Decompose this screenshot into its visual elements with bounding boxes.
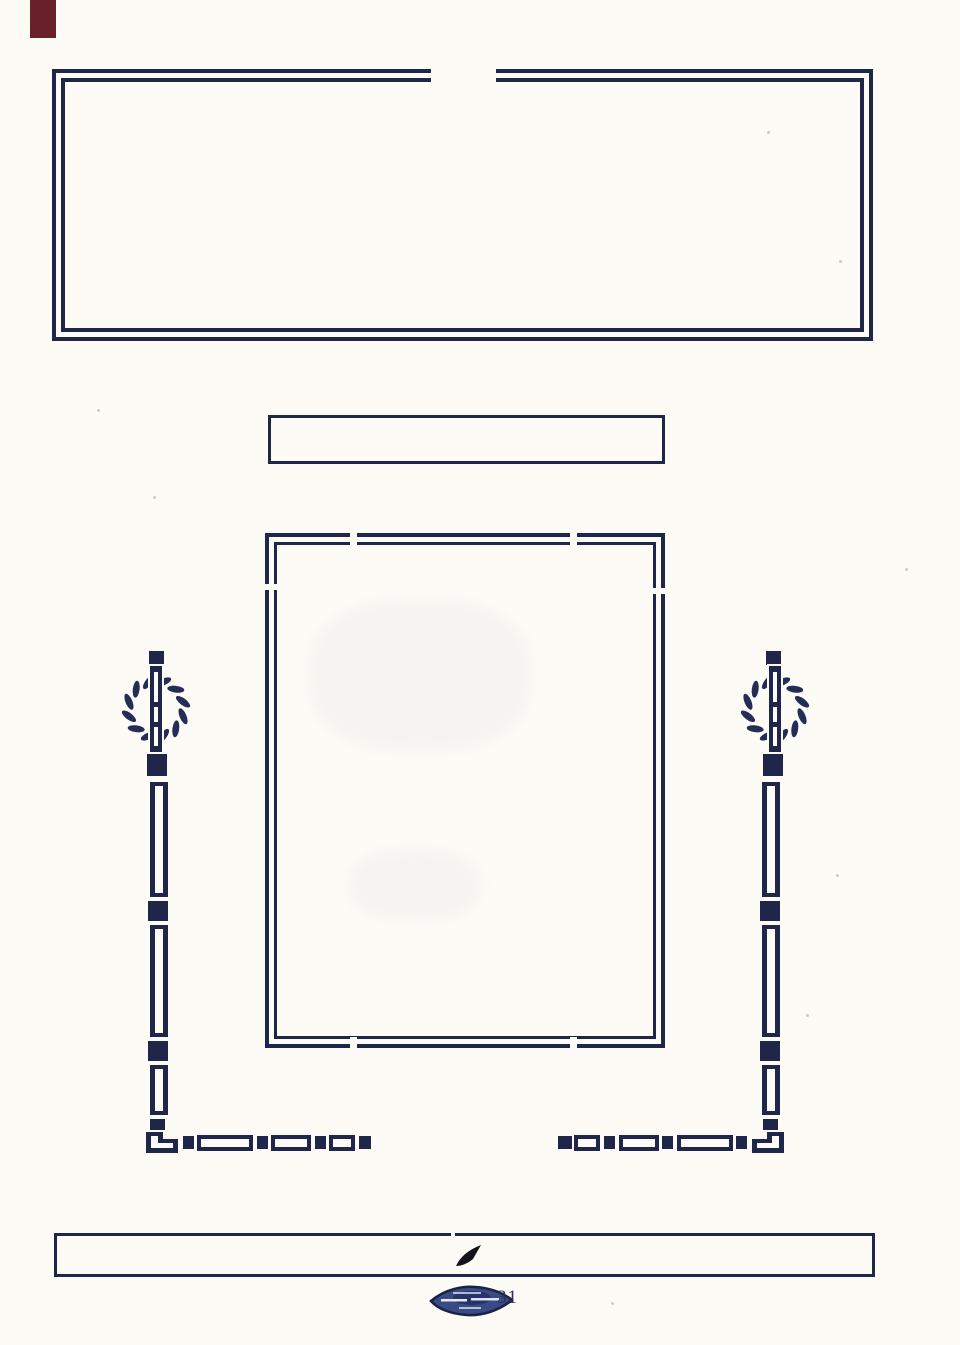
chain-bar-horizontal <box>677 1135 733 1151</box>
page-number: 31 <box>497 1288 518 1307</box>
frame-rule-break <box>451 1230 455 1239</box>
bead <box>183 1136 194 1149</box>
chain-bar-horizontal <box>574 1135 600 1151</box>
chain-bar-horizontal <box>197 1135 253 1151</box>
bead <box>760 1041 780 1061</box>
wreath-and-staff-icon <box>119 664 193 754</box>
bead <box>149 651 164 665</box>
chain-bar-vertical <box>150 1065 168 1115</box>
bead <box>766 651 781 665</box>
chain-corner-icon <box>146 1132 178 1153</box>
chain-bar-horizontal <box>329 1135 355 1151</box>
chain-bar-vertical <box>762 782 780 897</box>
chain-bar-horizontal <box>271 1135 311 1151</box>
top-frame-rule-gap <box>431 65 496 87</box>
show-through-smudge <box>310 600 530 750</box>
frame-rule-break <box>570 1037 577 1051</box>
bead <box>760 901 780 921</box>
chain-bar-horizontal <box>619 1135 659 1151</box>
bead <box>315 1136 326 1149</box>
bead <box>662 1136 673 1149</box>
chain-corner-icon <box>752 1132 784 1153</box>
show-through-smudge <box>350 850 480 920</box>
frame-rule-break <box>350 531 357 552</box>
ink-blot-triangle <box>454 1243 484 1268</box>
chain-bar-vertical <box>762 1065 780 1115</box>
bead <box>604 1136 615 1149</box>
bead <box>558 1136 572 1149</box>
bead <box>763 754 783 776</box>
title-box <box>268 415 665 464</box>
frame-rule-break <box>645 588 666 594</box>
bead <box>257 1136 268 1149</box>
frame-rule-break <box>570 531 577 552</box>
frame-rule-break <box>350 1037 357 1051</box>
chain-bar-vertical <box>150 782 168 897</box>
bead <box>147 754 167 776</box>
red-ink-mark <box>30 0 56 38</box>
bead <box>148 901 168 921</box>
top-frame <box>52 69 873 341</box>
bead <box>763 1119 778 1130</box>
wreath-and-staff-icon <box>738 664 812 754</box>
bead <box>736 1136 747 1149</box>
frame-rule-break <box>263 584 284 590</box>
bead <box>359 1136 371 1149</box>
bead <box>150 1119 165 1130</box>
bead <box>148 1041 168 1061</box>
scanned-page: 31 <box>0 0 960 1345</box>
chain-bar-vertical <box>150 925 168 1037</box>
chain-bar-vertical <box>762 925 780 1037</box>
